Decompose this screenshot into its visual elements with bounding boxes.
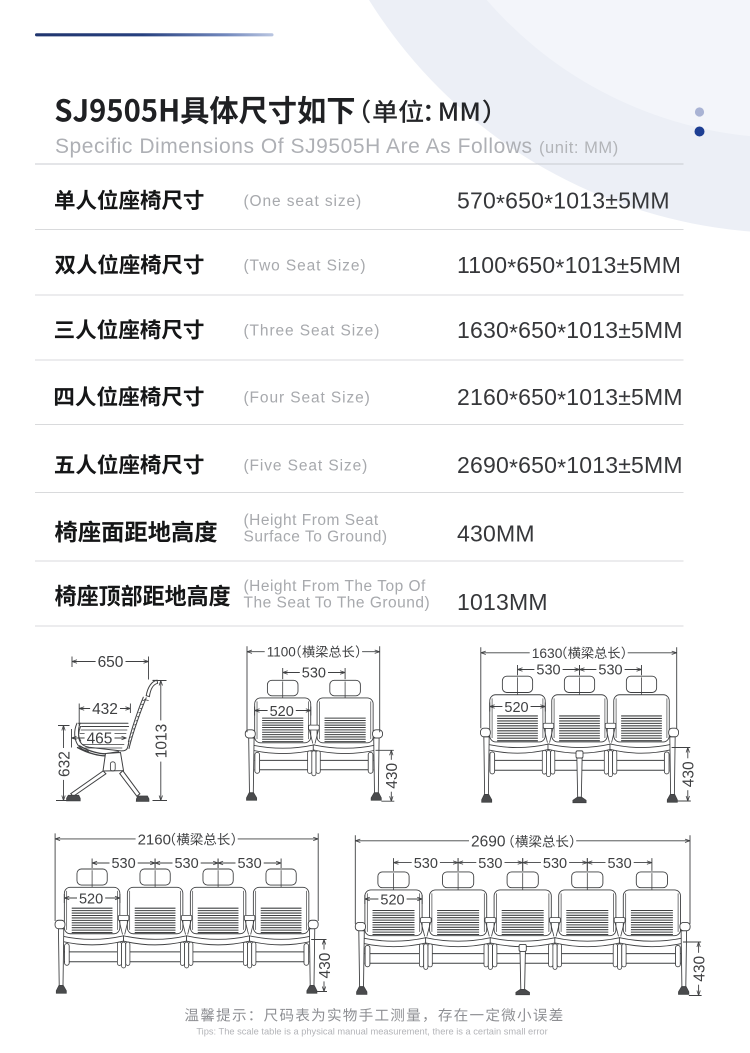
svg-text:1013: 1013 [153, 724, 170, 758]
svg-text:1100: 1100 [267, 645, 296, 660]
svg-text:(Four Seat Size): (Four Seat Size) [244, 390, 371, 407]
svg-text:530: 530 [598, 663, 622, 679]
svg-text:530: 530 [536, 663, 560, 679]
svg-text:2160: 2160 [138, 831, 171, 848]
svg-text:Surface To Ground): Surface To Ground) [244, 529, 388, 546]
svg-text:430: 430 [317, 952, 334, 978]
svg-text:530: 530 [478, 856, 502, 872]
svg-text:570*650*1013±5MM: 570*650*1013±5MM [457, 188, 670, 217]
svg-text:520: 520 [380, 893, 404, 909]
svg-text:1630: 1630 [532, 646, 563, 661]
svg-text:Specific Dimensions Of SJ9505H: Specific Dimensions Of SJ9505H Are As Fo… [55, 135, 619, 158]
svg-text:The Seat To The Ground): The Seat To The Ground) [244, 595, 431, 612]
svg-text:(Five Seat Size): (Five Seat Size) [244, 458, 369, 475]
svg-text:(Height From Seat: (Height From Seat [244, 512, 379, 529]
svg-text:465: 465 [87, 731, 113, 748]
svg-text:530: 530 [543, 856, 567, 872]
svg-text:430MM: 430MM [457, 521, 535, 547]
svg-text:520: 520 [79, 892, 103, 908]
svg-text:530: 530 [607, 856, 631, 872]
svg-text:2690: 2690 [471, 833, 506, 850]
svg-text:432: 432 [92, 701, 118, 718]
svg-text:530: 530 [414, 856, 438, 872]
svg-text:520: 520 [504, 700, 528, 716]
svg-text:530: 530 [111, 856, 135, 872]
svg-text:1100*650*1013±5MM: 1100*650*1013±5MM [457, 252, 681, 281]
svg-text:Tips: The scale table is a phy: Tips: The scale table is a physical manu… [196, 1027, 547, 1037]
svg-text:430: 430 [692, 955, 709, 981]
svg-text:530: 530 [237, 856, 261, 872]
svg-text:530: 530 [174, 856, 198, 872]
svg-text:(Three Seat Size): (Three Seat Size) [244, 323, 381, 340]
svg-text:1013MM: 1013MM [457, 589, 548, 615]
svg-text:(Height From The Top Of: (Height From The Top Of [244, 578, 427, 595]
svg-text:2690*650*1013±5MM: 2690*650*1013±5MM [457, 452, 683, 481]
svg-text:(Two Seat Size): (Two Seat Size) [244, 258, 367, 275]
svg-text:530: 530 [302, 666, 326, 682]
svg-text:650: 650 [98, 654, 124, 671]
svg-text:430: 430 [681, 761, 698, 787]
svg-text:1630*650*1013±5MM: 1630*650*1013±5MM [457, 317, 683, 346]
svg-text:632: 632 [56, 751, 73, 777]
svg-text:430: 430 [384, 762, 401, 788]
svg-text:2160*650*1013±5MM: 2160*650*1013±5MM [457, 384, 683, 413]
svg-text:(One seat size): (One seat size) [244, 193, 363, 210]
svg-text:520: 520 [270, 704, 294, 720]
